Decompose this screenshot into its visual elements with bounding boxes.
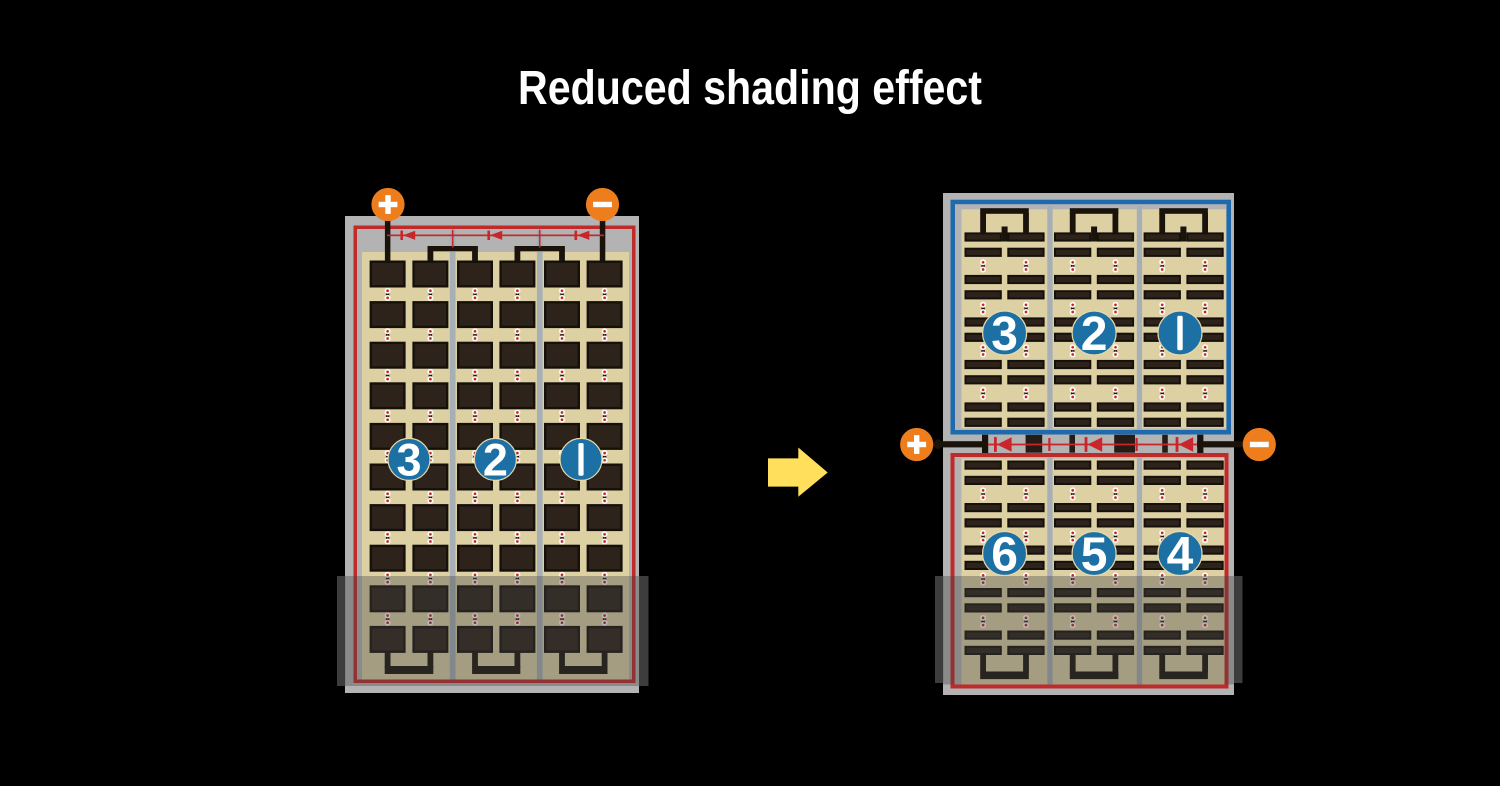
svg-text:2: 2 — [483, 434, 508, 485]
svg-text:Reduced shading effect: Reduced shading effect — [518, 62, 982, 115]
svg-text:2: 2 — [1081, 308, 1108, 361]
svg-text:3: 3 — [396, 434, 421, 485]
svg-text:5: 5 — [1081, 528, 1108, 581]
svg-text:6: 6 — [991, 528, 1018, 581]
svg-text:4: 4 — [1167, 528, 1194, 581]
svg-text:3: 3 — [991, 308, 1018, 361]
